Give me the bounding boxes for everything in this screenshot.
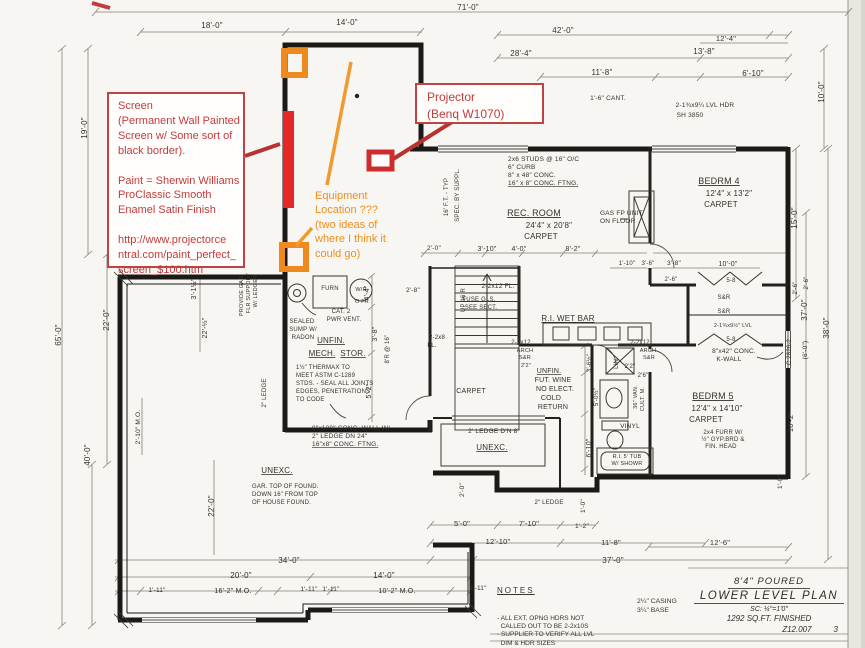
floor-dot <box>355 94 359 98</box>
plan-label: 2x6 STUDS @ 16" O/C <box>508 156 579 163</box>
notes-block: NOTES - ALL EXT. OPNG HDRS NOT CALLED OU… <box>497 571 657 648</box>
plan-label: GAR. TOP OF FOUND. <box>252 484 319 490</box>
plan-label: 15'-0" <box>790 207 799 229</box>
note-line <box>118 159 241 174</box>
plan-label: 1'-11" <box>300 586 318 593</box>
note-line: - ALL EXT. OPNG HDRS NOT <box>497 615 657 623</box>
plan-label: 19'-0" <box>80 117 89 139</box>
plan-label: 3'-1½" <box>190 278 198 299</box>
plan-label: 11'-8" <box>601 538 621 547</box>
plan-label: 12'4" x 13'2" <box>706 189 752 198</box>
plan-label: PWR VENT. <box>327 317 362 323</box>
plan-label: CAT. 2 <box>332 309 351 315</box>
plan-label: 3'-8" <box>667 260 681 267</box>
plan-label: S&R <box>519 355 531 361</box>
plan-label: 10'-0" <box>718 261 737 268</box>
plan-label: 4'-0" <box>512 246 527 253</box>
plan-label: SH 3850 <box>677 112 704 119</box>
plan-label: 2-1¾x9¼ LVL HDR <box>676 102 735 109</box>
plan-label: 2" LEDGE DN 24" <box>312 433 368 440</box>
plan-label: UNEXC. <box>476 443 507 452</box>
plan-label: CARPET <box>524 232 558 241</box>
plan-label: 65'-0" <box>54 324 63 346</box>
note-line <box>118 218 241 233</box>
plan-label: 18'-0" <box>201 21 223 30</box>
plan-label: FIN. HEAD <box>705 444 737 450</box>
plan-label: RADON <box>292 335 315 341</box>
note-line: (two ideas of <box>315 218 430 232</box>
plan-label: FL. <box>427 343 436 349</box>
note-line: (Permanent Wall Painted <box>118 114 241 129</box>
plan-label: ½" GYP.BRD & <box>701 436 744 443</box>
plan-label: 22'-0" <box>207 495 216 517</box>
note-line: DIM & HDR SIZES <box>497 640 657 648</box>
sink <box>606 388 622 408</box>
plan-label: 8"x100" CONC. WALL W/ <box>312 425 390 432</box>
plan-scale: SC: ¼"=1'0" <box>690 606 848 613</box>
plan-label: 12'4" x 14'10" <box>691 404 742 413</box>
equipment-note-text: EquipmentLocation ???(two ideas ofwhere … <box>315 189 430 261</box>
plan-label: 14'-0" <box>373 571 395 580</box>
plan-label: 2" LEDGE <box>262 378 268 407</box>
base-note: 3¼" BASE <box>637 606 677 615</box>
plan-label: 2'-10" M.O. <box>135 410 142 445</box>
sheet-margin <box>848 0 865 648</box>
plan-label: 8'R @ 16" <box>385 335 391 364</box>
plan-label: RETURN <box>538 404 568 411</box>
plan-label: UNFIN. <box>317 336 345 345</box>
plan-label: 3'-6½" <box>586 354 593 372</box>
plan-label: 6" CURB <box>508 164 536 171</box>
plan-label: 2'-6" <box>804 277 810 290</box>
plan-label: 8" x 48" CONC. <box>508 172 556 179</box>
plan-label: 24'4" x 20'8" <box>526 221 572 230</box>
note-line: ntral.com/paint_perfect_ <box>118 248 241 263</box>
plan-label: MEET ASTM C-1289 <box>296 373 356 379</box>
plan-label: 1'-6" CANT. <box>590 95 626 102</box>
plan-label: 13'-8" <box>693 47 715 56</box>
plan-label: 10'-2" <box>786 412 795 432</box>
plan-label: COLD <box>541 395 561 402</box>
screen-annotation-note: Screen(Permanent Wall PaintedScreen w/ S… <box>107 92 245 268</box>
plan-label: 11'-8" <box>592 68 613 77</box>
plan-label: 38'-0" <box>822 317 831 339</box>
plan-label: 8'-2" <box>566 246 581 253</box>
plan-title: LOWER LEVEL PLAN <box>690 590 848 604</box>
plan-label: C 2826-2 <box>787 338 793 365</box>
plan-label: 16'-2" M.O. <box>214 588 251 595</box>
note-line: Paint = Sherwin Williams <box>118 174 241 189</box>
casing-note: 2¼" CASING <box>637 597 677 606</box>
plan-label: (6'-0") <box>802 341 809 360</box>
plan-label: CARPET <box>689 415 723 424</box>
plan-label: GAS FP UNIT <box>600 210 643 217</box>
notes-title: NOTES <box>497 587 657 595</box>
plan-label: 2'-6" <box>793 282 799 295</box>
note-line: (Benq W1070) <box>427 106 542 123</box>
plan-label: S&R <box>718 295 731 301</box>
plan-label: 1'-2" <box>575 523 589 530</box>
plan-label: W/ SHOWR <box>612 461 643 467</box>
plan-label: 2'2" <box>521 363 531 369</box>
plan-label: LIN. <box>614 357 620 369</box>
plan-label: 12'-4" <box>716 34 736 43</box>
plan-label: BEDRM 4 <box>698 176 739 186</box>
plan-label: 71'-0" <box>457 3 479 12</box>
plan-label: 1'-10" <box>619 261 635 267</box>
plan-label: 1'-0" <box>777 475 784 489</box>
plan-label: 1'-0" <box>580 499 587 513</box>
plan-label: 3'-6" <box>642 261 655 267</box>
plan-label: UNEXC. <box>261 466 292 475</box>
plan-label: 1'-11" <box>469 585 487 592</box>
plan-label: 10'-0" <box>817 81 826 103</box>
plan-label: 28'-4" <box>510 49 532 58</box>
plan-label: VINYL <box>620 423 640 430</box>
plan-label: TO CODE <box>296 397 325 403</box>
plan-label: 2-2x12 <box>630 340 650 346</box>
plan-label: 2'2" <box>625 364 636 370</box>
plan-label: 36" VAN. <box>633 385 639 409</box>
note-line: where I think it <box>315 232 430 246</box>
note-line: Projector <box>427 89 542 106</box>
projector-marker <box>369 152 392 169</box>
note-line: Enamel Satin Finish <box>118 203 241 218</box>
plan-label: 5'-0½" <box>593 388 600 406</box>
plan-label: 2'-6" <box>665 277 678 283</box>
equipment-location-note: EquipmentLocation ???(two ideas ofwhere … <box>315 189 430 261</box>
plan-label: R.I. WET BAR <box>541 314 594 323</box>
plan-label: 2x4 FURR W/ <box>703 430 742 436</box>
title-block: 8'4" POURED LOWER LEVEL PLAN SC: ¼"=1'0"… <box>690 576 848 634</box>
plan-label: 2-2x12 <box>511 340 531 346</box>
plan-label: STDS. - SEAL ALL JOINTS <box>296 381 374 387</box>
plan-label: REC. ROOM <box>507 208 561 218</box>
plan-label: 3'-10" <box>477 246 496 253</box>
plan-label: K-WALL <box>716 356 741 363</box>
plan-label: 2-2x8 <box>429 335 445 341</box>
plan-label: 2' LEDGE D'N 8" <box>468 428 520 435</box>
plan-label: 5-8 <box>726 337 736 343</box>
plan-label: 16' F.T. - TYP <box>444 178 450 217</box>
plan-label: BEDRM 5 <box>692 391 733 401</box>
sump <box>288 284 306 302</box>
plan-label: EDGES, PENETRATIONS <box>296 389 370 395</box>
note-line: screen_$100.htm <box>118 263 241 278</box>
plan-label: DOWN 16" FROM TOP <box>252 492 318 498</box>
vanity <box>600 380 628 418</box>
plan-label: UP 16 R <box>461 288 467 312</box>
projector-note-text: Projector(Benq W1070) <box>427 89 542 122</box>
scanned-floor-plan-sheet: 71'-0"18'-0"14'-0"42'-0"12'-4"28'-4"13'-… <box>0 0 865 648</box>
note-line: - SUPPLIER TO VERIFY ALL LVL <box>497 631 657 639</box>
plan-label: S&R <box>643 355 655 361</box>
screen-bar <box>283 111 294 208</box>
note-line: ProClassic Smooth <box>118 188 241 203</box>
plan-label: MECH. <box>309 349 336 358</box>
plan-label: FUT. WINE <box>535 377 572 384</box>
plan-label: ON FLOOR <box>600 218 636 225</box>
plan-label: 6'-10" <box>742 69 764 78</box>
plan-label: 37'-0" <box>800 299 809 321</box>
note-line: Equipment <box>315 189 430 203</box>
note-line: Location ??? <box>315 203 430 217</box>
plan-label: PROVIDE GAR. <box>239 274 245 316</box>
plan-label: SUMP W/ <box>289 327 317 333</box>
plan-label: 5-8 <box>726 278 736 284</box>
plan-label: 37'-0" <box>602 556 624 565</box>
plan-label: 16"x8" CONC. FTNG. <box>312 441 378 448</box>
toilet-bowl <box>607 431 623 449</box>
plan-label: CARPET <box>704 200 738 209</box>
sheet-number: Z12.007 <box>782 625 811 634</box>
plan-label: 22'-½" <box>201 317 209 338</box>
plan-label: SPEC. BY SUPPL. <box>455 168 461 222</box>
plan-label: ARCH <box>517 348 533 354</box>
note-line: http://www.projectorce <box>118 233 241 248</box>
plan-label: 2'-8" <box>406 287 420 294</box>
plan-area: 1292 SQ.FT. FINISHED <box>690 614 848 623</box>
plan-label: CULT. M. <box>640 387 646 411</box>
plan-label: UNFIN. <box>537 368 562 375</box>
furnace <box>313 276 347 308</box>
plan-label: 1'-11" <box>148 587 166 594</box>
plan-label: NO ELECT. <box>536 386 574 393</box>
plan-label: W/H <box>355 287 366 293</box>
projector-annotation-note: Projector(Benq W1070) <box>415 83 544 124</box>
plan-label: STOR. <box>340 349 365 358</box>
equipment-leader-top <box>327 62 351 185</box>
screen-note-text: Screen(Permanent Wall PaintedScreen w/ S… <box>118 99 241 278</box>
note-line: Screen <box>118 99 241 114</box>
plan-label: 3'-8" <box>372 326 379 341</box>
title-poured: 8'4" POURED <box>690 576 848 589</box>
plan-label: CARPET <box>456 388 486 395</box>
casing-base-note: 2¼" CASING 3¼" BASE <box>637 597 677 615</box>
plan-label: 7'-10" <box>519 519 539 528</box>
plan-label: 6'-10" <box>586 438 593 457</box>
plan-label: FURN <box>321 286 338 292</box>
plan-label: 10'-2" M.O. <box>378 588 415 595</box>
plan-label: 1'-11" <box>322 586 340 593</box>
plan-label: SEE SECT. <box>465 305 498 311</box>
page-number: 3 <box>834 625 838 634</box>
plan-label: 5'-0" <box>454 519 470 528</box>
plan-label: 2" LEDGE <box>534 500 563 506</box>
plan-label: 12'-6" <box>710 538 730 547</box>
red-scribble-mark <box>92 3 110 8</box>
plan-label: 2-2x12 FL. <box>481 283 514 290</box>
plan-label: 22'-0" <box>102 309 111 331</box>
sheet-number-row: Z12.007 3 <box>690 625 848 634</box>
plan-label: SEALED <box>290 319 315 325</box>
plan-label: FLR SUPPORT <box>246 272 252 313</box>
note-line: CALLED OUT TO BE 2-2x10S <box>497 623 657 631</box>
plan-label: 20'-0" <box>230 571 252 580</box>
note-line: could go) <box>315 247 430 261</box>
plan-label: 8"x42" CONC. <box>712 348 756 355</box>
plan-label: 16" x 8" CONC. FTNG. <box>508 180 578 187</box>
plan-label: 14'-0" <box>336 18 358 27</box>
plan-label: 12'-10" <box>486 537 511 546</box>
plan-label: 2-1¾x9½" LVL <box>714 322 752 329</box>
plan-label: R.I. 5' TUB <box>613 454 642 460</box>
plan-label: 34'-0" <box>278 556 300 565</box>
plan-label: 1½" THERMAX TO <box>296 364 350 371</box>
plan-label: 2'6" <box>638 373 649 379</box>
plan-label: O FR <box>355 299 369 305</box>
plan-label: S&R <box>718 309 731 315</box>
plan-label: 2'-0" <box>459 483 466 497</box>
plan-label: ARCH <box>640 348 656 354</box>
notes-lines: - ALL EXT. OPNG HDRS NOT CALLED OUT TO B… <box>497 615 657 648</box>
plan-label: FUSE GLS. <box>462 297 495 303</box>
note-line: black border). <box>118 144 241 159</box>
note-line: Screen w/ Some sort of <box>118 129 241 144</box>
plan-label: 40'-0" <box>83 444 92 466</box>
screen-leader-line <box>245 144 280 156</box>
plan-label: W/ LEDGER <box>253 275 259 308</box>
plan-label: 42'-0" <box>552 26 574 35</box>
plan-label: OF HOUSE FOUND. <box>252 500 311 506</box>
